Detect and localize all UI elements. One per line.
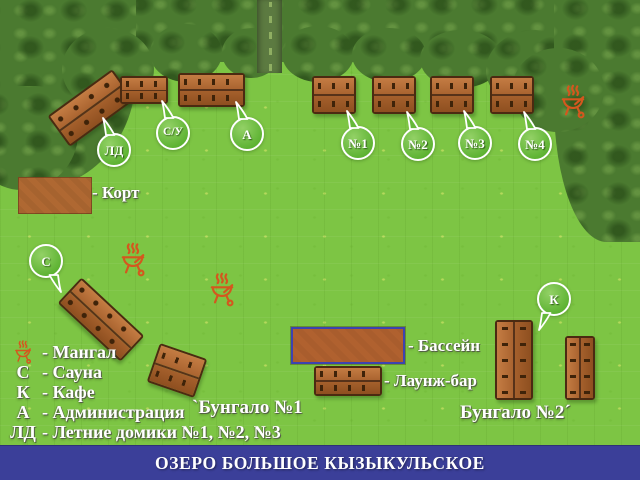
marker-text: ЛД: [105, 144, 124, 157]
marker-text: №3: [465, 137, 485, 150]
lake-title: ОЗЕРО БОЛЬШОЕ КЫЗЫКУЛЬСКОЕ: [155, 453, 485, 474]
legend-item-sauna: С - Сауна: [4, 362, 281, 382]
label-bungalow-2: Бунгало №2´: [460, 403, 571, 422]
tree-blob: [352, 28, 426, 82]
pool-area: [291, 327, 405, 364]
marker-text: №2: [408, 138, 428, 151]
legend-text: - Администрация: [42, 403, 185, 421]
legend-item-grill: - Мангал: [4, 342, 281, 362]
marker-text: А: [242, 128, 251, 141]
cabin-toilet-su: [120, 76, 168, 104]
marker-text: С: [41, 255, 50, 268]
marker-sauna: С: [29, 244, 63, 278]
marker-house-1: №1: [341, 126, 375, 160]
label-court: - Корт: [92, 184, 139, 201]
road-center-line: [269, 2, 272, 71]
marker-text: С/У: [163, 127, 183, 139]
label-pool: - Бассейн: [408, 337, 480, 354]
marker-house-4: №4: [518, 127, 552, 161]
legend-key: А: [4, 403, 42, 421]
marker-house-2: №2: [401, 127, 435, 161]
grill-icon: [559, 84, 587, 119]
marker-text: №1: [348, 137, 368, 150]
resort-map: ЛД С/У А №1 №2 №3 №4 С К - Корт - Бассей…: [0, 0, 640, 480]
cabin-guest-house-2: [372, 76, 416, 114]
legend-text: - Летние домики №1, №2, №3: [42, 423, 281, 441]
cabin-guest-house-3: [430, 76, 474, 114]
legend: - Мангал С - Сауна К - Кафе А - Админист…: [4, 342, 281, 442]
legend-key: ЛД: [4, 423, 42, 441]
legend-text: - Мангал: [42, 343, 116, 361]
cabin-bungalow-2: [565, 336, 595, 400]
legend-key: С: [4, 363, 42, 381]
marker-text: К: [549, 293, 558, 306]
cabin-cafe: [495, 320, 533, 400]
marker-house-3: №3: [458, 126, 492, 160]
grill-icon: [119, 242, 147, 277]
grill-icon: [4, 340, 42, 364]
legend-text: - Кафе: [42, 383, 95, 401]
marker-summer-houses: ЛД: [97, 133, 131, 167]
legend-item-summer-houses: ЛД - Летние домики №1, №2, №3: [4, 422, 281, 442]
lake-title-banner: ОЗЕРО БОЛЬШОЕ КЫЗЫКУЛЬСКОЕ: [0, 445, 640, 480]
legend-key: К: [4, 383, 42, 401]
legend-item-cafe: К - Кафе: [4, 382, 281, 402]
cabin-guest-house-1: [312, 76, 356, 114]
label-lounge-bar: - Лаунж-бар: [384, 372, 477, 389]
entrance-road: [257, 0, 282, 73]
cabin-lounge-bar: [314, 366, 382, 396]
marker-text: №4: [525, 138, 545, 151]
legend-text: - Сауна: [42, 363, 102, 381]
marker-toilet: С/У: [156, 116, 190, 150]
marker-cafe: К: [537, 282, 571, 316]
grill-icon: [208, 272, 236, 307]
court-area: [18, 177, 92, 214]
legend-item-administration: А - Администрация: [4, 402, 281, 422]
tree-blob: [282, 26, 354, 82]
marker-administration: А: [230, 117, 264, 151]
cabin-guest-house-4: [490, 76, 534, 114]
